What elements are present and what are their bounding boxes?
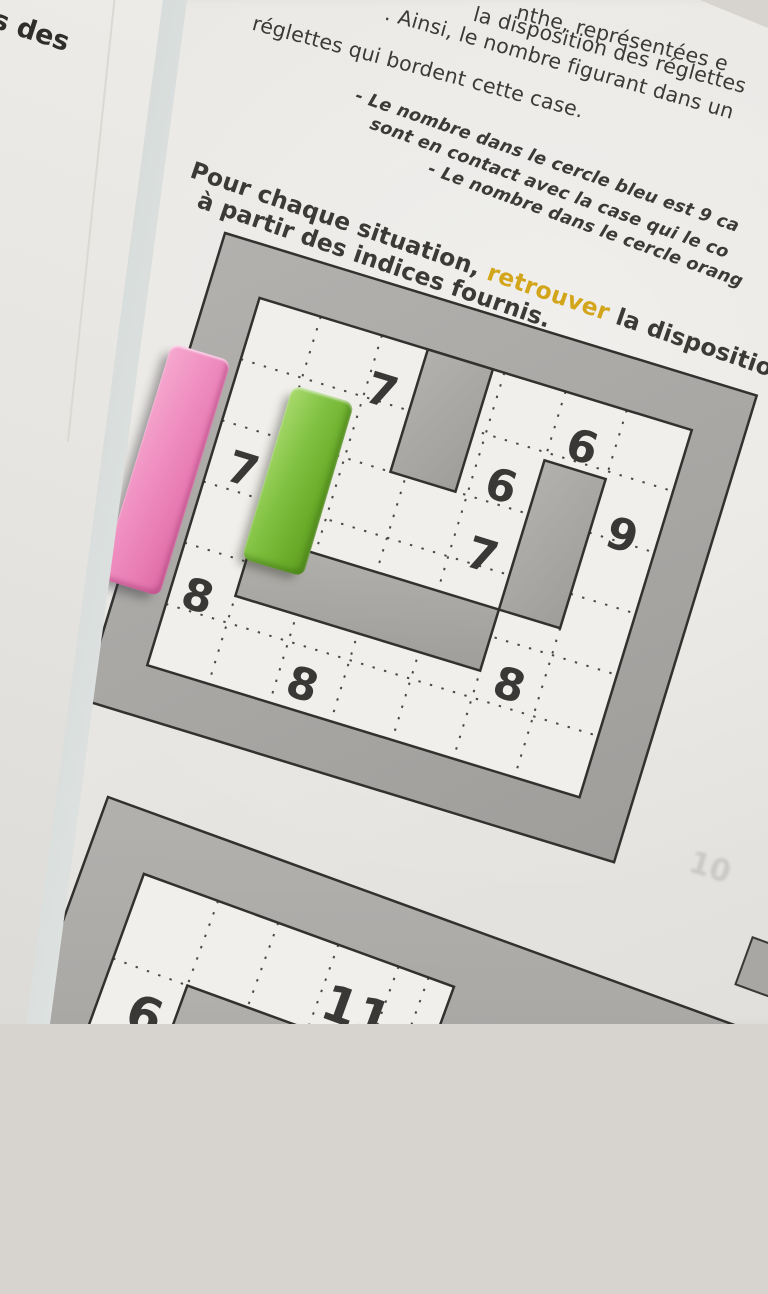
maze2-outer-border <box>19 797 768 1294</box>
photo-of-worksheet: { "scene": { "description": "Photo of a … <box>0 0 768 1024</box>
bleedthrough-number: 10 <box>685 845 735 891</box>
maze3-border-fragment <box>734 936 768 1001</box>
labyrinth-puzzle-2: 6 11 <box>19 797 768 1294</box>
